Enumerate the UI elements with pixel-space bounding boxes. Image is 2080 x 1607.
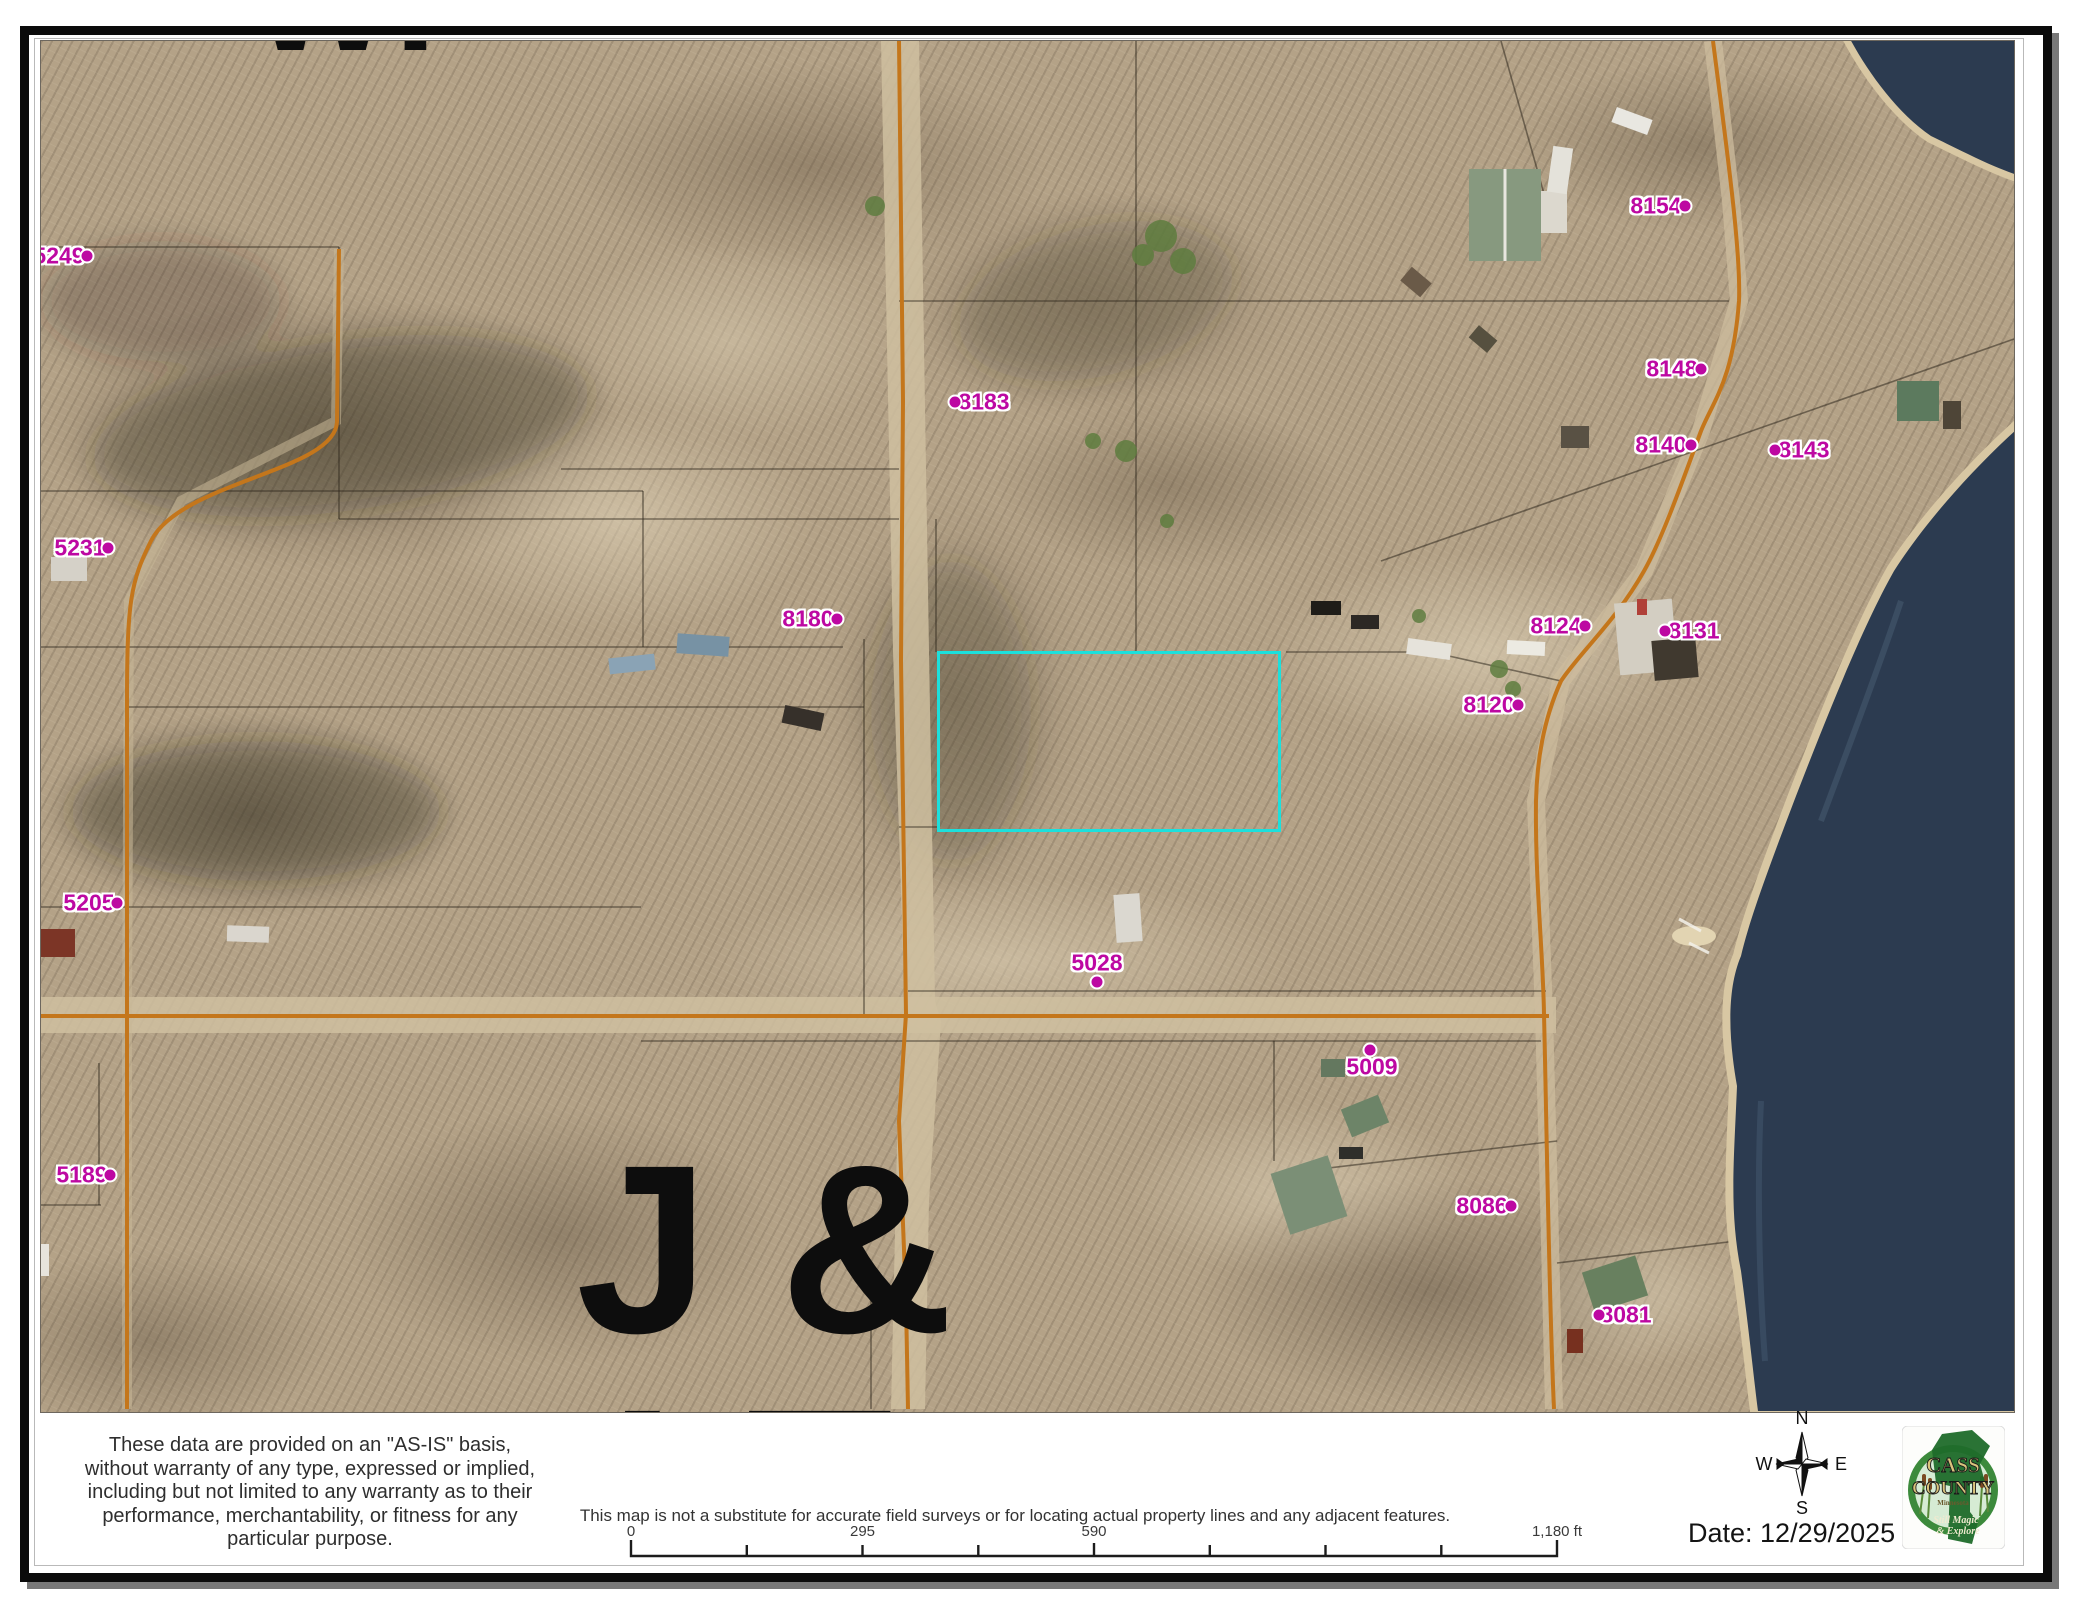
parcel-address-label: 8131	[1668, 618, 1719, 645]
parcel-point-dot	[1678, 199, 1693, 214]
compass-s-label: S	[1796, 1498, 1808, 1518]
parcel-point-dot	[103, 1168, 118, 1183]
parcel-address-label: 8143	[1778, 437, 1829, 464]
parcel-point-dot	[80, 249, 95, 264]
north-arrow-icon: N W E S	[1744, 1408, 1860, 1520]
parcel-point-dot	[110, 896, 125, 911]
parcel-labels-layer: 5249523152055189818081838154814881408143…	[40, 40, 2015, 1413]
parcel-point-dot	[948, 395, 963, 410]
parcel-point-dot	[830, 612, 845, 627]
compass-n-label: N	[1796, 1408, 1809, 1428]
county-logo: CASS COUNTY Minnesota Still Magic & Expl…	[1902, 1426, 2005, 1549]
scale-label-0: 0	[627, 1523, 635, 1540]
parcel-address-label: 8154	[1630, 193, 1681, 220]
parcel-point-dot	[1768, 443, 1783, 458]
map-viewport[interactable]: WI J & I T 52495231520551898180818381548…	[40, 40, 2015, 1413]
scale-label-590: 590	[1081, 1523, 1106, 1540]
parcel-address-label: 8148	[1646, 356, 1697, 383]
parcel-address-label: 5189	[56, 1162, 107, 1189]
parcel-point-dot	[1694, 362, 1709, 377]
date-text: Date: 12/29/2025	[1688, 1518, 1895, 1549]
logo-tagline1: Still Magic	[1933, 1515, 1979, 1526]
logo-name-line2: COUNTY	[1912, 1478, 1995, 1499]
scale-label-295: 295	[850, 1523, 875, 1540]
parcel-point-dot	[1592, 1308, 1607, 1323]
scale-bar: 0 295 590 1,180 ft	[600, 1520, 1600, 1565]
parcel-address-label: 8086	[1456, 1193, 1507, 1220]
parcel-point-dot	[1504, 1199, 1519, 1214]
scale-label-1180: 1,180 ft	[1532, 1523, 1583, 1540]
parcel-address-label: 5231	[54, 535, 105, 562]
compass-e-label: E	[1835, 1454, 1847, 1474]
parcel-point-dot	[1511, 698, 1526, 713]
parcel-address-label: 5249	[40, 243, 85, 270]
map-sheet: { "map": { "big_labels": {"top": "WI", "…	[0, 0, 2080, 1607]
parcel-address-label: 5028	[1071, 950, 1122, 977]
parcel-point-dot	[101, 541, 116, 556]
logo-state-label: Minnesota	[1937, 1499, 1969, 1507]
logo-tagline2: & Explore	[1936, 1526, 1980, 1537]
parcel-address-label: 5009	[1346, 1054, 1397, 1081]
parcel-address-label: 8124	[1530, 613, 1581, 640]
parcel-point-dot	[1658, 624, 1673, 639]
parcel-point-dot	[1090, 975, 1105, 990]
parcel-address-label: 8081	[1600, 1302, 1651, 1329]
disclaimer-text: These data are provided on an "AS-IS" ba…	[64, 1434, 556, 1552]
parcel-address-label: 8183	[958, 389, 1009, 416]
logo-name-line1: CASS	[1926, 1453, 1980, 1477]
parcel-point-dot	[1684, 438, 1699, 453]
compass-w-label: W	[1756, 1454, 1773, 1474]
parcel-point-dot	[1363, 1043, 1378, 1058]
parcel-address-label: 8120	[1463, 692, 1514, 719]
parcel-address-label: 8140	[1635, 432, 1686, 459]
parcel-point-dot	[1578, 619, 1593, 634]
parcel-address-label: 5205	[63, 890, 114, 917]
parcel-address-label: 8180	[782, 606, 833, 633]
